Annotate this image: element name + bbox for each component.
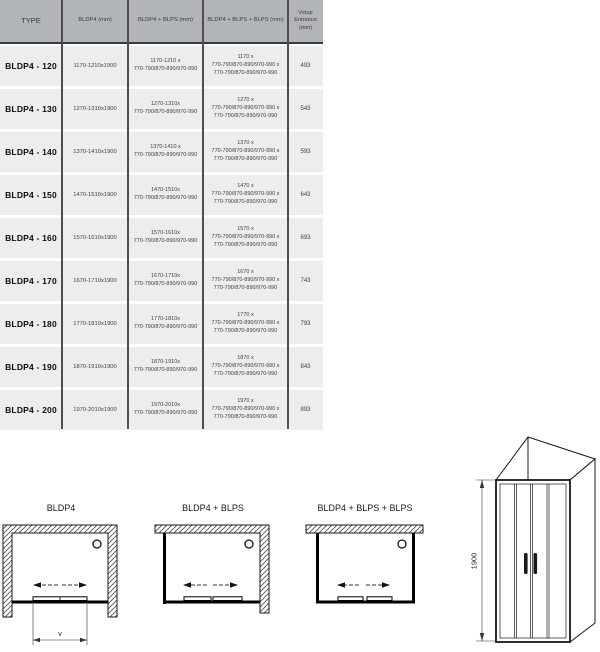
cell-bldp4-blps-blps: 1770 x 770-790/870-890/970-990 x 770-790… (203, 304, 288, 344)
cell-bldp4: 1970-2010x1900 (62, 390, 128, 430)
cell-entrance: 743 (288, 261, 323, 301)
cell-type: BLDP4 - 200 (0, 390, 62, 430)
cell-bldp4-blps: 1670-1710x 770-790/870-890/970-990 (128, 261, 203, 301)
diagram-bldp4-blps: BLDP4 + BLPS (155, 503, 269, 613)
door-frame-inner (500, 484, 566, 638)
cell-bldp4-blps-blps: 1570 x 770-790/870-890/970-990 x 770-790… (203, 218, 288, 258)
column-border-4 (287, 0, 289, 429)
sliding-panel-right (213, 597, 242, 601)
cell-bldp4-blps-blps: 1470 x 770-790/870-890/970-990 x 770-790… (203, 175, 288, 215)
glass-panel-dividers (515, 484, 550, 638)
cell-entrance: 543 (288, 89, 323, 129)
cell-type: BLDP4 - 140 (0, 132, 62, 172)
cell-bldp4: 1770-1810x1900 (62, 304, 128, 344)
diagram-bldp4-blps-label: BLDP4 + BLPS (182, 503, 244, 513)
column-border-2 (127, 0, 129, 429)
cell-entrance: 693 (288, 218, 323, 258)
cell-bldp4: 1370-1410x1900 (62, 132, 128, 172)
fixed-panel-left (316, 533, 319, 601)
fixed-panel-left (163, 533, 166, 604)
table-row: BLDP4 - 150 1470-1510x1900 1470-1510x 77… (0, 175, 323, 215)
cell-bldp4: 1470-1510x1900 (62, 175, 128, 215)
table-row: BLDP4 - 140 1370-1410x1900 1370-1410 x 7… (0, 132, 323, 172)
cell-type: BLDP4 - 160 (0, 218, 62, 258)
shower-position-icon (93, 540, 101, 548)
header-bldp4: BLDP4 (mm) (62, 0, 128, 42)
door-track (316, 601, 415, 604)
sliding-panel-left (338, 597, 363, 601)
cell-bldp4-blps: 1270-1310x 770-790/870-890/970-990 (128, 89, 203, 129)
cell-bldp4-blps-blps: 1970 x 770-790/870-890/970-990 x 770-790… (203, 390, 288, 430)
table-row: BLDP4 - 170 1670-1710x1900 1670-1710x 77… (0, 261, 323, 301)
technical-diagrams: BLDP4 v BLDP4 + BLPS (0, 432, 600, 652)
column-border-3 (202, 0, 204, 429)
cell-entrance: 843 (288, 347, 323, 387)
table-row: BLDP4 - 130 1270-1310x1900 1270-1310x 77… (0, 89, 323, 129)
wall-hatch (155, 525, 269, 613)
table-row: BLDP4 - 180 1770-1810x1900 1770-1810x 77… (0, 304, 323, 344)
cell-bldp4-blps: 1470-1510x 770-790/870-890/970-990 (128, 175, 203, 215)
diagram-bldp4-label: BLDP4 (47, 503, 76, 513)
cell-bldp4: 1870-1910x1900 (62, 347, 128, 387)
table-body: BLDP4 - 120 1170-1210x1900 1170-1210 x 7… (0, 46, 323, 430)
cell-type: BLDP4 - 170 (0, 261, 62, 301)
height-dimension: 1900 (470, 480, 497, 641)
cell-type: BLDP4 - 180 (0, 304, 62, 344)
door-handle-left (524, 553, 528, 574)
cell-bldp4: 1570-1610x1900 (62, 218, 128, 258)
slide-direction-arrows (33, 582, 87, 587)
diagrams-svg: BLDP4 v BLDP4 + BLPS (0, 432, 600, 652)
cell-entrance: 493 (288, 46, 323, 86)
box-right-face (570, 459, 595, 642)
header-bldp4-blps-blps: BLDP4 + BLPS + BLPS (mm) (203, 0, 288, 42)
cell-bldp4-blps-blps: 1370 x 770-790/870-890/970-990 x 770-790… (203, 132, 288, 172)
diagram-bldp4-blps-blps: BLDP4 + BLPS + BLPS (306, 503, 423, 604)
header-entrance: Vstup Entrance (mm) (288, 0, 323, 42)
header-bldp4-blps: BLDP4 + BLPS (mm) (128, 0, 203, 42)
cell-type: BLDP4 - 130 (0, 89, 62, 129)
shower-position-icon (245, 540, 253, 548)
cell-bldp4: 1270-1310x1900 (62, 89, 128, 129)
wall-hatch (306, 525, 423, 533)
height-dimension-label: 1900 (470, 553, 479, 570)
fixed-panel-right (412, 533, 415, 601)
cell-type: BLDP4 - 120 (0, 46, 62, 86)
cell-type: BLDP4 - 150 (0, 175, 62, 215)
shower-position-icon (398, 540, 406, 548)
diagram-bldp4-blps-blps-label: BLDP4 + BLPS + BLPS (317, 503, 412, 513)
table-row: BLDP4 - 160 1570-1610x1900 1570-1610x 77… (0, 218, 323, 258)
slide-direction-arrows (183, 582, 238, 587)
drawing-3d-door: 1900 (470, 437, 596, 642)
cell-bldp4-blps: 1870-1910x 770-790/870-890/970-990 (128, 347, 203, 387)
entrance-dimension: v (33, 604, 87, 645)
table-row: BLDP4 - 200 1970-2010x1900 1970-2010x 77… (0, 390, 323, 430)
cell-type: BLDP4 - 190 (0, 347, 62, 387)
diagram-bldp4: BLDP4 v (3, 503, 117, 645)
cell-bldp4-blps: 1170-1210 x 770-790/870-890/970-990 (128, 46, 203, 86)
cell-bldp4-blps-blps: 1670 x 770-790/870-890/970-990 x 770-790… (203, 261, 288, 301)
slide-direction-arrows (337, 582, 390, 587)
sliding-panel-left (184, 597, 211, 601)
cell-entrance: 893 (288, 390, 323, 430)
cell-bldp4-blps-blps: 1270 x 770-790/870-890/970-990 x 770-790… (203, 89, 288, 129)
cell-bldp4-blps-blps: 1170 x 770-790/870-890/970-990 x 770-790… (203, 46, 288, 86)
size-spec-table: TYPE BLDP4 (mm) BLDP4 + BLPS (mm) BLDP4 … (0, 0, 323, 430)
cell-bldp4-blps: 1570-1610x 770-790/870-890/970-990 (128, 218, 203, 258)
door-frame-outer (496, 480, 570, 642)
cell-entrance: 593 (288, 132, 323, 172)
cell-bldp4-blps: 1970-2010x 770-790/870-890/970-990 (128, 390, 203, 430)
header-type: TYPE (0, 0, 62, 42)
cell-bldp4-blps-blps: 1870 x 770-790/870-890/970-990 x 770-790… (203, 347, 288, 387)
spec-sheet-page: TYPE BLDP4 (mm) BLDP4 + BLPS (mm) BLDP4 … (0, 0, 600, 652)
cell-bldp4-blps: 1770-1810x 770-790/870-890/970-990 (128, 304, 203, 344)
cell-bldp4-blps: 1370-1410 x 770-790/870-890/970-990 (128, 132, 203, 172)
cell-entrance: 643 (288, 175, 323, 215)
cell-entrance: 793 (288, 304, 323, 344)
cell-bldp4: 1170-1210x1900 (62, 46, 128, 86)
sliding-panel-right (367, 597, 392, 601)
column-border-1 (61, 0, 63, 429)
table-header-row: TYPE BLDP4 (mm) BLDP4 + BLPS (mm) BLDP4 … (0, 0, 323, 42)
cell-bldp4: 1670-1710x1900 (62, 261, 128, 301)
door-handle-right (534, 553, 538, 574)
table-row: BLDP4 - 190 1870-1910x1900 1870-1910x 77… (0, 347, 323, 387)
table-row: BLDP4 - 120 1170-1210x1900 1170-1210 x 7… (0, 46, 323, 86)
dimension-v-label: v (58, 631, 62, 638)
